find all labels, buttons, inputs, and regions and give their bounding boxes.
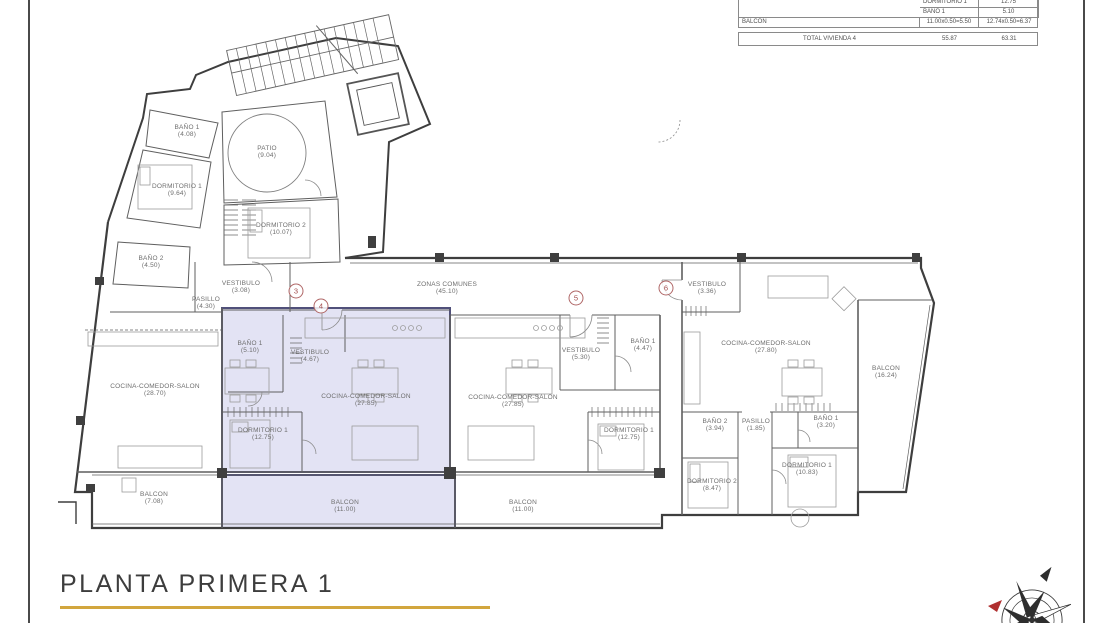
total-value: 63.31 <box>979 33 1039 45</box>
summary-table-body: DORMITORIO 1 12.75 BAÑO 1 5.10 BALCON 11… <box>738 0 1038 28</box>
table-row-label: BALCON <box>739 18 920 27</box>
table-row-value: 11.00x0.50=5.50 <box>920 18 979 27</box>
unit-number-badge: 3 <box>289 284 304 299</box>
unit-number-badge: 5 <box>569 291 584 306</box>
outer-walls <box>58 38 934 528</box>
compass-north-marker <box>988 600 1002 612</box>
table-row-label: BAÑO 1 <box>920 8 979 18</box>
table-row-value: 12.74x0.50=6.37 <box>979 18 1039 27</box>
column-markers <box>76 236 920 492</box>
interior-walls <box>77 101 932 528</box>
elevator <box>347 73 409 135</box>
title-block: PLANTA PRIMERA 1 <box>60 570 660 609</box>
table-row-value: 5.10 <box>979 8 1039 18</box>
total-value: 55.87 <box>920 33 979 45</box>
page: { "title": {"text": "PLANTA PRIMERA 1", … <box>0 0 1110 623</box>
compass-rose-icon <box>980 562 1084 623</box>
floor-plan: BAÑO 1 (4.08) PATIO (9.04) DORMITORIO 1 … <box>0 0 1110 623</box>
unit-number-badge: 6 <box>659 281 674 296</box>
patio-circle <box>228 114 306 192</box>
table-row-label: DORMITORIO 1 <box>920 0 979 8</box>
summary-table-total-row: TOTAL VIVIENDA 4 55.87 63.31 <box>738 32 1038 46</box>
area-summary-table: DORMITORIO 1 12.75 BAÑO 1 5.10 BALCON 11… <box>738 0 1038 46</box>
total-label: TOTAL VIVIENDA 4 <box>739 33 920 45</box>
title-underline <box>60 606 490 609</box>
unit-number-badge: 4 <box>314 299 329 314</box>
table-row-value: 12.75 <box>979 0 1039 8</box>
page-title: PLANTA PRIMERA 1 <box>60 570 660 599</box>
table-row-value <box>739 0 920 18</box>
highlighted-apartment <box>222 308 455 528</box>
floor-plan-svg <box>0 0 1110 623</box>
